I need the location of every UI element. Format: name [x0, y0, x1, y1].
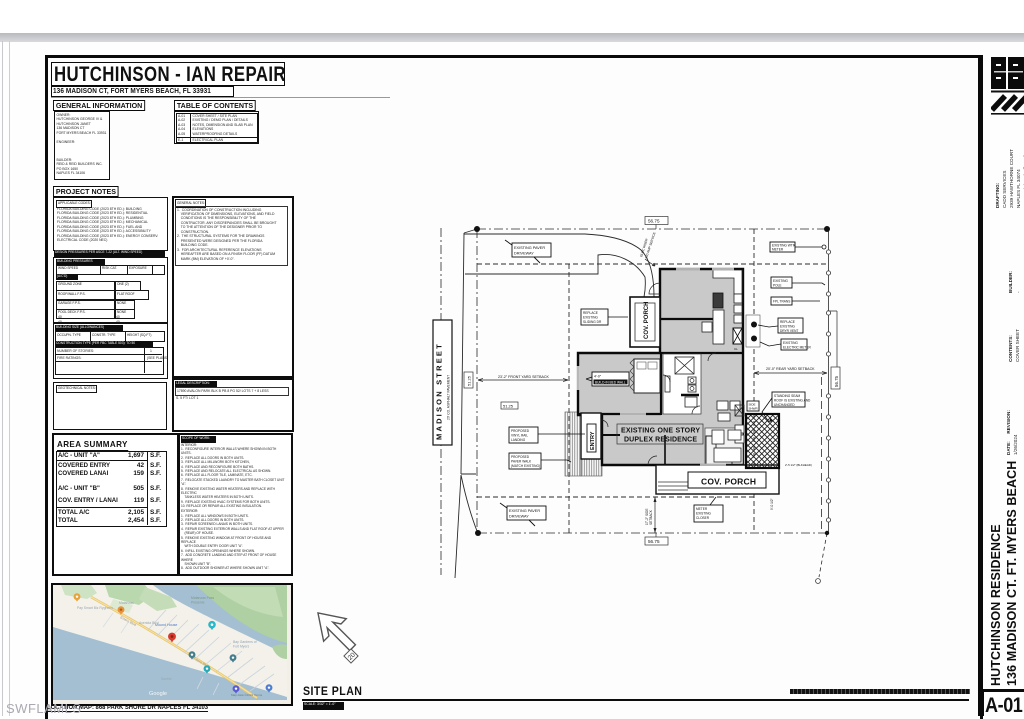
svg-text:REPLACE: REPLACE — [583, 311, 598, 315]
svg-text:9'-0 1/2": 9'-0 1/2" — [770, 498, 774, 510]
svg-text:STANDING SEAM: STANDING SEAM — [774, 394, 800, 398]
svg-text:DRYR VENT: DRYR VENT — [780, 329, 798, 333]
svg-text:DUPLEX RESIDENCE: DUPLEX RESIDENCE — [624, 437, 697, 444]
svg-text:Map data ©2024 Terms: Map data ©2024 Terms — [231, 693, 263, 697]
svg-text:SETBACK: SETBACK — [649, 509, 653, 525]
svg-text:COV. PORCH: COV. PORCH — [701, 477, 756, 487]
svg-text:EXISTING PAVER: EXISTING PAVER — [514, 246, 545, 250]
svg-text:56.75: 56.75 — [834, 375, 839, 387]
svg-text:POLE: POLE — [773, 284, 782, 288]
svg-text:ROOF IS EXISTING AND: ROOF IS EXISTING AND — [774, 399, 811, 403]
svg-text:ENTRY: ENTRY — [590, 431, 596, 450]
svg-text:EXISTING: EXISTING — [696, 512, 711, 516]
svg-text:EXISTING PAVER: EXISTING PAVER — [509, 509, 540, 513]
svg-text:EXISTING: EXISTING — [783, 341, 798, 345]
svg-text:Matanzas: Matanzas — [119, 601, 134, 605]
svg-text:MADISON STREET: MADISON STREET — [435, 342, 444, 440]
svg-text:Bay Gardens of: Bay Gardens of — [233, 640, 257, 644]
svg-text:COV. PORCH: COV. PORCH — [644, 302, 650, 339]
svg-text:PROPOSED: PROPOSED — [511, 429, 530, 433]
svg-text:BUILD-IN BED WALL: BUILD-IN BED WALL — [595, 380, 626, 384]
svg-text:20'-0" REAR YARD SETBACK: 20'-0" REAR YARD SETBACK — [766, 367, 815, 371]
svg-text:METER: METER — [772, 248, 784, 252]
svg-text:56.75: 56.75 — [648, 539, 660, 544]
svg-text:(MATCH EXISTING): (MATCH EXISTING) — [511, 464, 540, 468]
svg-text:EXISTING: EXISTING — [773, 279, 788, 283]
svg-text:EXISTING ONE STORY: EXISTING ONE STORY — [621, 428, 700, 435]
svg-text:LANDING: LANDING — [511, 438, 526, 442]
svg-text:Matanzas Pass: Matanzas Pass — [191, 596, 214, 600]
svg-text:PROPOSED: PROPOSED — [511, 455, 530, 459]
svg-text:56.75: 56.75 — [648, 219, 660, 224]
svg-text:Santini: Santini — [161, 677, 172, 681]
svg-text:FPL TRANS: FPL TRANS — [773, 300, 790, 304]
svg-text:VINYL RAIL: VINYL RAIL — [511, 434, 528, 438]
svg-text:Fort Myers: Fort Myers — [233, 645, 250, 649]
svg-text:CLOSER: CLOSER — [696, 516, 710, 520]
svg-text:51.25: 51.25 — [503, 404, 514, 409]
svg-text:Google: Google — [149, 691, 167, 697]
svg-text:EXISTING: EXISTING — [780, 325, 795, 329]
svg-text:SHWR: SHWR — [749, 407, 759, 411]
svg-text:23'-2" FRONT YARD SETBACK: 23'-2" FRONT YARD SETBACK — [498, 375, 549, 379]
svg-text:ELECTRIC METER: ELECTRIC METER — [783, 346, 812, 350]
svg-text:REPLACE: REPLACE — [780, 320, 795, 324]
svg-text:UNCHANGED: UNCHANGED — [774, 403, 795, 407]
svg-text:Mound House: Mound House — [155, 623, 177, 627]
svg-text:20' CO. ASPHALT PAVEMENT: 20' CO. ASPHALT PAVEMENT — [447, 375, 451, 420]
svg-text:DRIVEWAY: DRIVEWAY — [514, 252, 534, 256]
svg-text:CL: CL — [734, 347, 738, 351]
svg-text:DRIVEWAY: DRIVEWAY — [509, 515, 529, 519]
svg-text:METER: METER — [696, 507, 708, 511]
svg-text:4'-0": 4'-0" — [594, 375, 602, 379]
svg-text:51.25: 51.25 — [467, 375, 472, 386]
svg-text:SLIDING DR: SLIDING DR — [583, 320, 602, 324]
svg-text:Pay Smart Biz Ryghters: Pay Smart Biz Ryghters — [77, 606, 113, 610]
svg-text:EXISTING: EXISTING — [583, 316, 598, 320]
svg-text:Preserve: Preserve — [191, 601, 205, 605]
svg-text:2'-5 1/2" (BLKHEAD): 2'-5 1/2" (BLKHEAD) — [785, 463, 812, 467]
svg-text:PAVER WALK: PAVER WALK — [511, 460, 532, 464]
